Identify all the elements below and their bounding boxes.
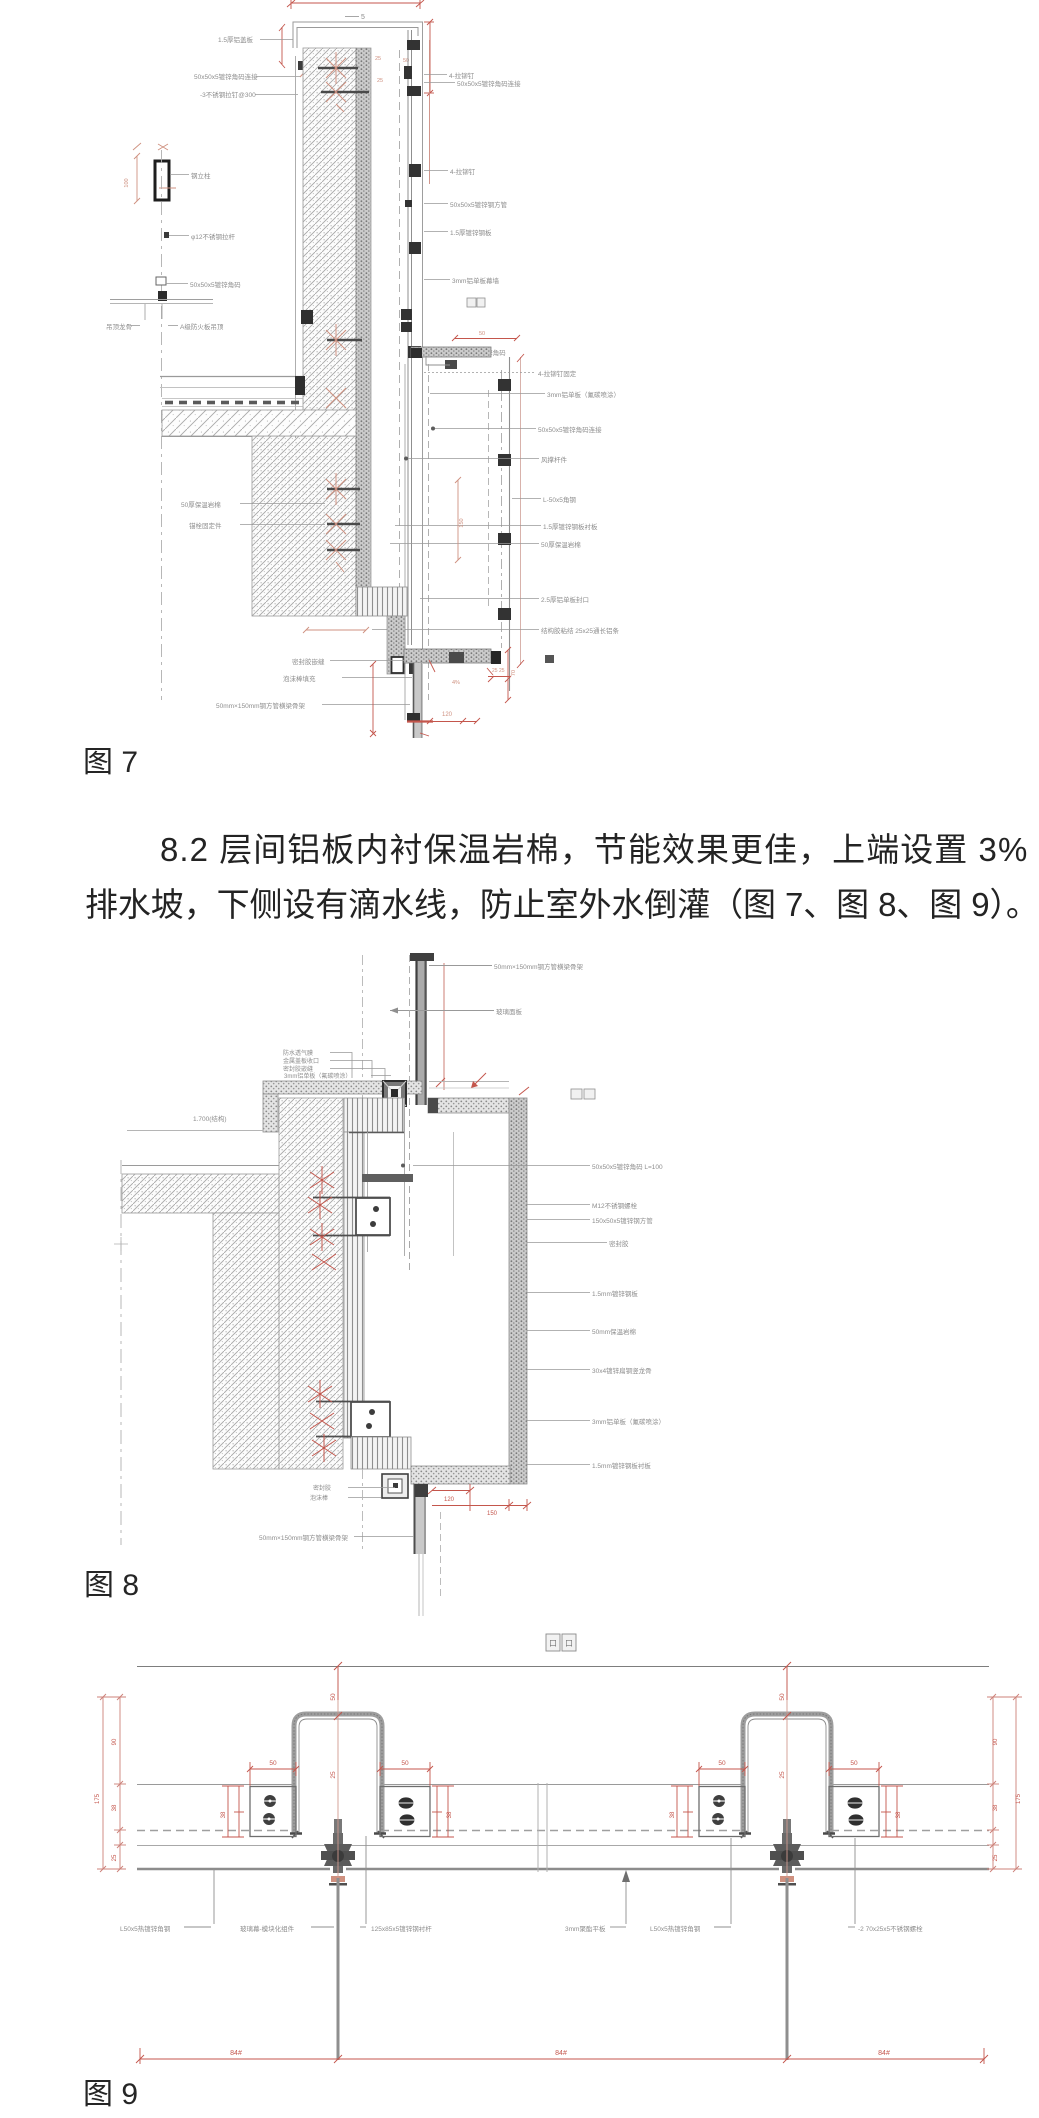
svg-text:84#: 84#: [555, 2050, 567, 2057]
svg-text:150: 150: [459, 518, 465, 527]
svg-text:3mm聚酯平板: 3mm聚酯平板: [565, 1924, 606, 1933]
svg-text:50x50x5镀锌钢方管: 50x50x5镀锌钢方管: [450, 200, 508, 209]
svg-text:38: 38: [221, 1811, 227, 1818]
svg-text:-2 70x25x5不锈钢螺栓: -2 70x25x5不锈钢螺栓: [858, 1924, 923, 1933]
svg-text:50: 50: [330, 1693, 337, 1701]
svg-text:38: 38: [447, 1811, 453, 1818]
svg-text:密封胶: 密封胶: [313, 1484, 331, 1492]
svg-text:金属盖板收口: 金属盖板收口: [283, 1057, 319, 1065]
svg-text:结构胶粘结 25x25通长铝条: 结构胶粘结 25x25通长铝条: [541, 626, 620, 635]
svg-text:风撑杆件: 风撑杆件: [541, 455, 568, 464]
svg-text:70: 70: [511, 670, 517, 676]
svg-text:4-拉铆钉固定: 4-拉铆钉固定: [538, 369, 577, 378]
svg-text:A级防火板吊顶: A级防火板吊顶: [180, 322, 224, 331]
svg-text:150x50x5镀锌钢方管: 150x50x5镀锌钢方管: [592, 1216, 653, 1225]
svg-text:50x50x5镀锌角码 L=100: 50x50x5镀锌角码 L=100: [592, 1162, 663, 1171]
svg-text:L50x5热镀锌角钢: L50x5热镀锌角钢: [650, 1924, 701, 1933]
svg-text:50: 50: [401, 1760, 409, 1767]
svg-text:1.5mm镀锌钢板衬板: 1.5mm镀锌钢板衬板: [592, 1461, 651, 1470]
svg-text:密封胶嵌缝: 密封胶嵌缝: [292, 657, 325, 666]
svg-text:25: 25: [330, 1771, 337, 1779]
svg-text:L-50x5角钢: L-50x5角钢: [543, 495, 576, 504]
svg-text:3mm铝单板（氟碳喷涂）: 3mm铝单板（氟碳喷涂）: [547, 390, 620, 399]
svg-text:L50x5热镀锌角钢: L50x5热镀锌角钢: [120, 1924, 171, 1933]
svg-text:防水透气膜: 防水透气膜: [283, 1049, 313, 1057]
svg-text:175: 175: [95, 1793, 101, 1804]
svg-text:50x50x5镀锌角码连接: 50x50x5镀锌角码连接: [194, 72, 258, 81]
svg-text:4-拉铆钉: 4-拉铆钉: [449, 71, 475, 80]
svg-text:φ12不锈钢拉杆: φ12不锈钢拉杆: [191, 232, 235, 241]
svg-text:50mm×150mm钢方管横梁骨架: 50mm×150mm钢方管横梁骨架: [494, 962, 584, 971]
svg-text:38: 38: [993, 1804, 999, 1811]
svg-text:1.700(结构): 1.700(结构): [193, 1114, 227, 1123]
svg-text:4-拉铆钉: 4-拉铆钉: [450, 167, 476, 176]
svg-text:玻璃幕-模块化组件: 玻璃幕-模块化组件: [240, 1924, 295, 1933]
svg-text:50x50x5镀锌角码: 50x50x5镀锌角码: [190, 280, 241, 289]
svg-text:1.5厚镀锌钢板衬板: 1.5厚镀锌钢板衬板: [543, 522, 598, 531]
svg-text:25: 25: [375, 56, 381, 62]
svg-text:口: 口: [565, 1639, 573, 1648]
svg-text:30x4镀锌扁钢竖龙骨: 30x4镀锌扁钢竖龙骨: [592, 1366, 652, 1375]
svg-text:50x50x5镀锌角码连接: 50x50x5镀锌角码连接: [538, 425, 602, 434]
svg-text:84#: 84#: [230, 2050, 242, 2057]
svg-text:玻璃面板: 玻璃面板: [496, 1007, 523, 1016]
svg-text:90: 90: [112, 1738, 118, 1745]
svg-text:M12不锈钢螺栓: M12不锈钢螺栓: [592, 1201, 638, 1210]
svg-text:50厚保温岩棉: 50厚保温岩棉: [181, 500, 221, 509]
svg-text:-3不锈钢拉钉@300: -3不锈钢拉钉@300: [200, 90, 256, 99]
svg-text:175: 175: [1016, 1793, 1022, 1804]
svg-text:25: 25: [993, 1854, 999, 1861]
svg-text:120: 120: [444, 1497, 455, 1503]
svg-text:50mm×150mm钢方管横梁骨架: 50mm×150mm钢方管横梁骨架: [259, 1533, 349, 1542]
svg-text:25: 25: [112, 1854, 118, 1861]
svg-text:1.5厚铝盖板: 1.5厚铝盖板: [218, 35, 254, 44]
svg-text:50: 50: [269, 1760, 277, 1767]
svg-text:密封胶嵌缝: 密封胶嵌缝: [283, 1065, 313, 1073]
svg-text:4%: 4%: [452, 680, 460, 686]
svg-text:50厚保温岩棉: 50厚保温岩棉: [541, 540, 581, 549]
svg-text:50mm×150mm钢方管横梁骨架: 50mm×150mm钢方管横梁骨架: [216, 701, 306, 710]
svg-text:3mm铝单板（氟碳喷涂）: 3mm铝单板（氟碳喷涂）: [592, 1417, 665, 1426]
svg-text:钢立柱: 钢立柱: [191, 171, 211, 180]
svg-text:50x50x5镀锌角码连接: 50x50x5镀锌角码连接: [457, 79, 521, 88]
svg-text:120: 120: [442, 712, 453, 718]
svg-text:50mm保温岩棉: 50mm保温岩棉: [592, 1327, 637, 1336]
svg-text:泡沫棒: 泡沫棒: [310, 1494, 328, 1502]
svg-text:25: 25: [377, 78, 383, 84]
svg-text:1.5mm镀锌钢板: 1.5mm镀锌钢板: [592, 1289, 638, 1298]
svg-text:泡沫棒填充: 泡沫棒填充: [283, 674, 316, 683]
svg-text:5: 5: [361, 14, 365, 21]
svg-text:3mm铝单板幕墙: 3mm铝单板幕墙: [452, 276, 499, 285]
svg-text:150: 150: [487, 1511, 498, 1517]
svg-text:84#: 84#: [878, 2050, 890, 2057]
svg-text:125x85x5镀锌钢衬杆: 125x85x5镀锌钢衬杆: [371, 1924, 432, 1933]
svg-text:50: 50: [479, 331, 485, 337]
svg-text:100: 100: [124, 178, 130, 187]
svg-text:2.5厚铝单板封口: 2.5厚铝单板封口: [541, 595, 589, 604]
svg-text:38: 38: [112, 1804, 118, 1811]
svg-text:吊顶龙骨: 吊顶龙骨: [106, 322, 132, 331]
svg-text:密封胶: 密封胶: [609, 1239, 629, 1248]
svg-text:锚栓固定件: 锚栓固定件: [189, 521, 222, 530]
svg-text:90: 90: [993, 1738, 999, 1745]
svg-text:25 25: 25 25: [492, 668, 505, 674]
svg-text:口: 口: [549, 1639, 557, 1648]
svg-text:3mm铝单板（氟碳喷涂）: 3mm铝单板（氟碳喷涂）: [284, 1072, 351, 1080]
svg-text:1.5厚镀锌钢板: 1.5厚镀锌钢板: [450, 228, 492, 237]
